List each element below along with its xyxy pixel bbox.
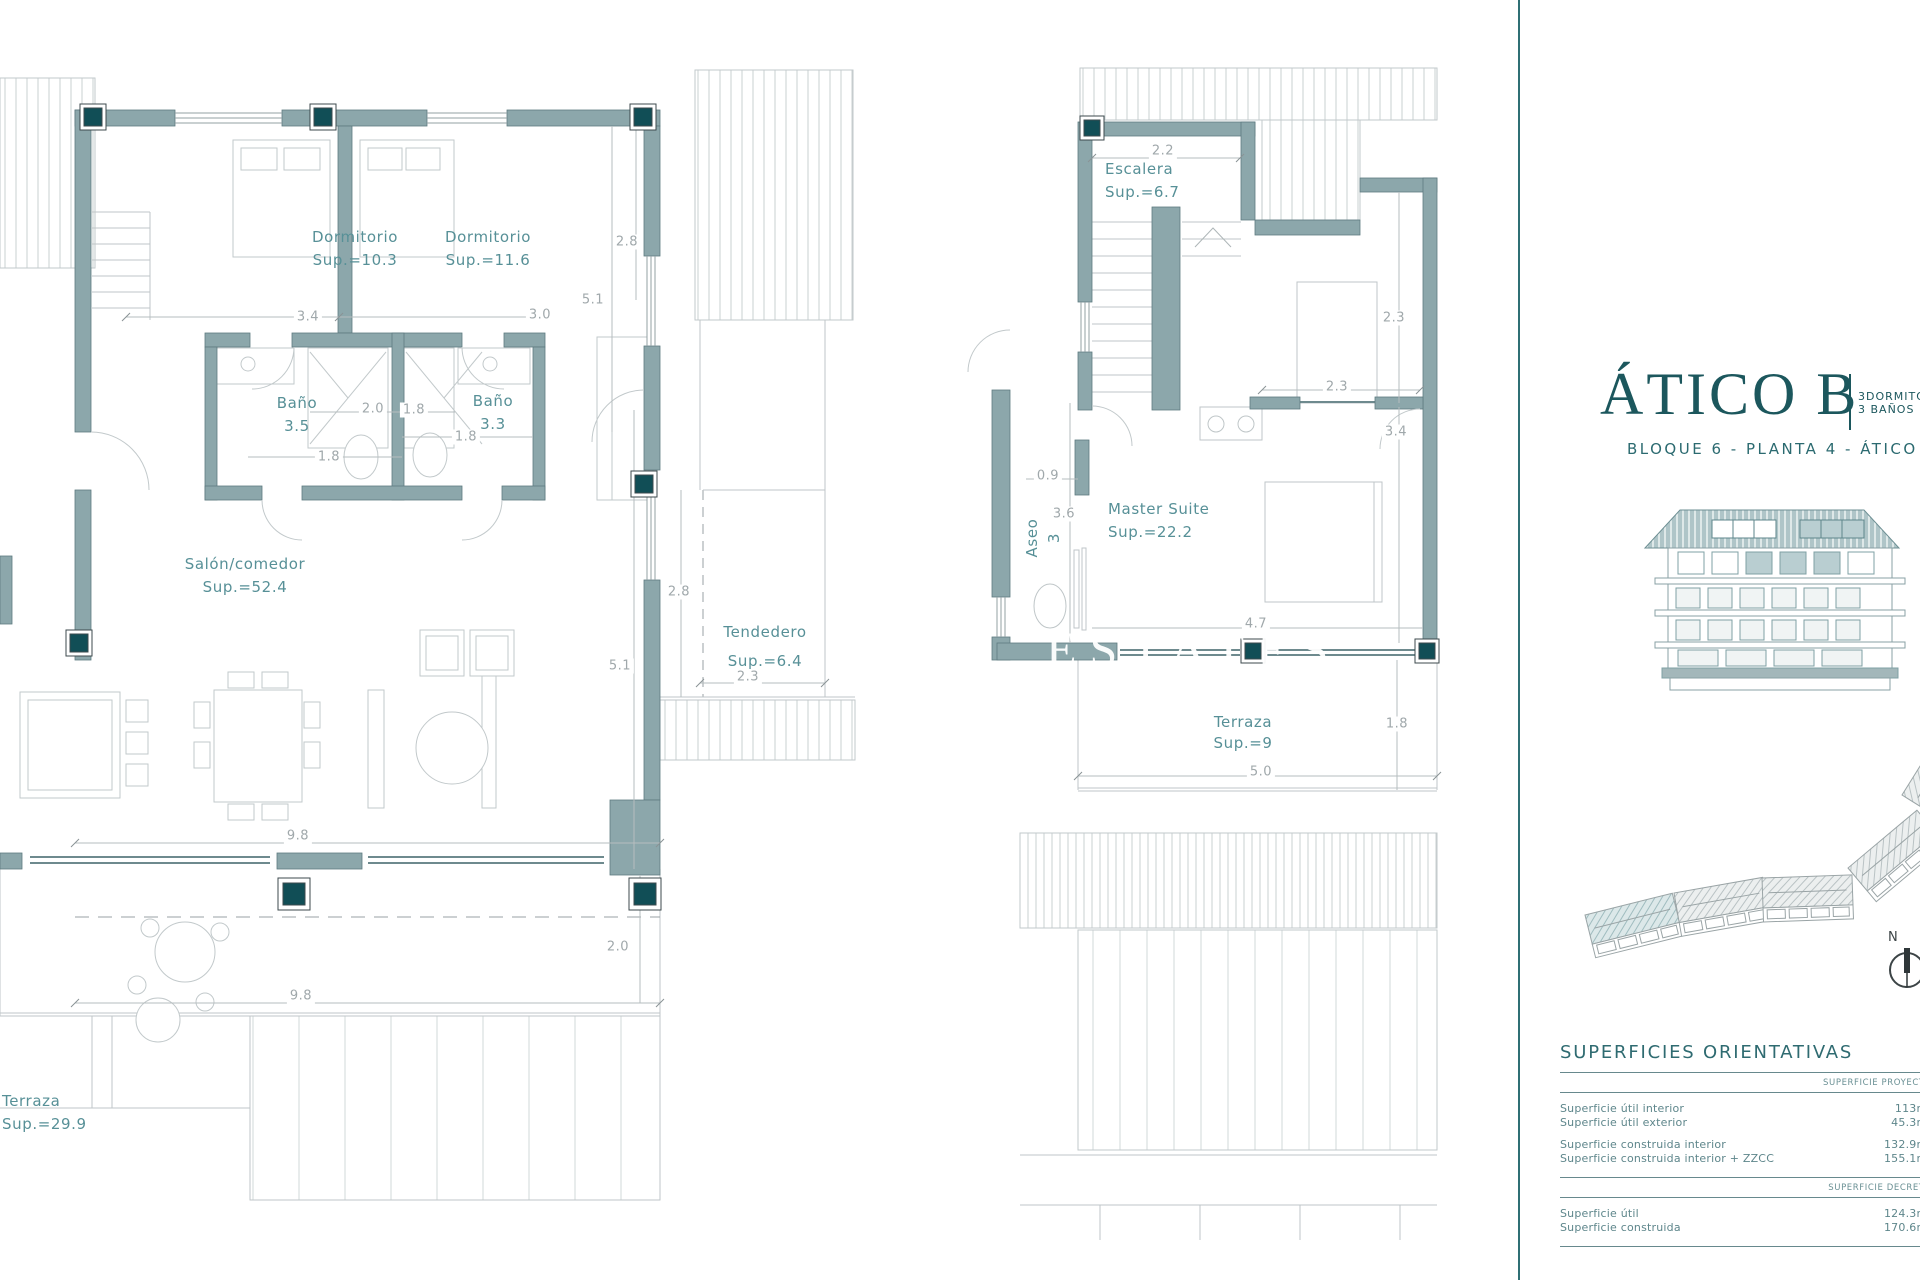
dim-label: 2.0	[359, 402, 387, 417]
building-elevation	[1645, 510, 1905, 690]
table-row: Superficie útil 124.3m²	[1560, 1207, 1920, 1221]
row-value: 155.1m²	[1884, 1152, 1920, 1166]
north-label: N	[1888, 930, 1898, 945]
dim-label: 9.8	[284, 829, 312, 844]
spacer	[1560, 1093, 1920, 1102]
dim-label: 5.1	[579, 293, 607, 308]
room-label-terraza-2: TerrazaSup.=9	[1213, 712, 1272, 754]
unit-specs: 3DORMITORIOS 3 BAÑOS	[1858, 390, 1920, 416]
table-row: Superficie útil interior 113m²	[1560, 1102, 1920, 1116]
room-label-tendedero: TendederoSup.=6.4	[723, 618, 806, 676]
site-plan	[1585, 719, 1920, 958]
room-label-aseo-sup: 3	[1045, 533, 1063, 543]
dim-label: 5.0	[1247, 765, 1275, 780]
spacer	[1560, 1165, 1920, 1177]
floorplan-sheet: { "colors": { "wall": "#8CA7AB", "wall_e…	[0, 0, 1920, 1280]
row-label: Superficie construida	[1560, 1221, 1681, 1235]
row-value: 170.6m²	[1884, 1221, 1920, 1235]
dim-label: 2.2	[1149, 144, 1177, 159]
room-label-terraza-1: TerrazaSup.=29.9	[2, 1090, 87, 1136]
dim-label: 3.4	[294, 310, 322, 325]
dim-label: 3.4	[1382, 425, 1410, 440]
spacer	[1560, 1198, 1920, 1207]
table-rule	[1560, 1246, 1920, 1247]
dim-label: 1.8	[315, 450, 343, 465]
row-label: Superficie útil exterior	[1560, 1116, 1687, 1130]
spacer	[1560, 1234, 1920, 1246]
bathrooms-count: 3 BAÑOS	[1858, 403, 1914, 416]
block-floor-subtitle: BLOQUE 6 - PLANTA 4 - ÁTICO B	[1627, 440, 1920, 458]
dim-label: 9.8	[287, 989, 315, 1004]
row-value: 45.3m²	[1891, 1116, 1920, 1130]
dim-label: 2.0	[604, 940, 632, 955]
room-label-dormitorio-2: DormitorioSup.=11.6	[445, 226, 531, 272]
dim-label: 5.1	[606, 659, 634, 674]
table-row: Superficie construida interior 132.9m²	[1560, 1138, 1920, 1152]
room-label-dormitorio-1: DormitorioSup.=10.3	[312, 226, 398, 272]
table-row: Superficie construida 170.6m²	[1560, 1221, 1920, 1235]
room-label-escalera: EscaleraSup.=6.7	[1105, 158, 1180, 204]
room-label-salon-comedor: Salón/comedorSup.=52.4	[185, 553, 306, 599]
north-arrow-icon	[1890, 948, 1920, 987]
surfaces-table-title: SUPERFICIES ORIENTATIVAS	[1560, 1042, 1920, 1063]
row-label: Superficie útil	[1560, 1207, 1639, 1221]
table-row: Superficie útil exterior 45.3m²	[1560, 1116, 1920, 1130]
surfaces-table: SUPERFICIES ORIENTATIVAS SUPERFICIE PROY…	[1560, 1042, 1920, 1247]
bedrooms-count: 3DORMITORIOS	[1858, 390, 1920, 403]
plan1-furniture	[20, 140, 647, 1042]
dim-label: 2.8	[665, 585, 693, 600]
row-value: 132.9m²	[1884, 1138, 1920, 1152]
room-label-aseo: Aseo	[1023, 519, 1041, 558]
row-value: 113m²	[1895, 1102, 1920, 1116]
spacer	[1560, 1129, 1920, 1138]
dim-label: 1.8	[1383, 717, 1411, 732]
table-section-header-1: SUPERFICIE PROYECTO	[1560, 1073, 1920, 1092]
table-row: Superficie construida interior + ZZCC 15…	[1560, 1152, 1920, 1166]
dim-label: 3.0	[526, 308, 554, 323]
dim-label: 1.8	[400, 403, 428, 418]
room-label-bano-1: Baño3.5	[277, 392, 318, 438]
dim-label: 3.6	[1050, 507, 1078, 522]
row-value: 124.3m²	[1884, 1207, 1920, 1221]
watermark: ESTATES	[1046, 620, 1341, 678]
dim-label: 2.3	[1323, 380, 1351, 395]
unit-title: ÁTICO B	[1600, 360, 1859, 429]
dim-label: 2.3	[1380, 311, 1408, 326]
dim-label: 2.8	[613, 235, 641, 250]
row-label: Superficie construida interior + ZZCC	[1560, 1152, 1774, 1166]
title-separator-bar	[1849, 374, 1851, 430]
room-label-bano-2: Baño3.3	[473, 390, 514, 436]
room-label-master-suite: Master SuiteSup.=22.2	[1108, 498, 1210, 544]
row-label: Superficie construida interior	[1560, 1138, 1726, 1152]
table-section-header-2: SUPERFICIE DECRETO	[1560, 1178, 1920, 1197]
dim-label: 0.9	[1034, 469, 1062, 484]
row-label: Superficie útil interior	[1560, 1102, 1684, 1116]
